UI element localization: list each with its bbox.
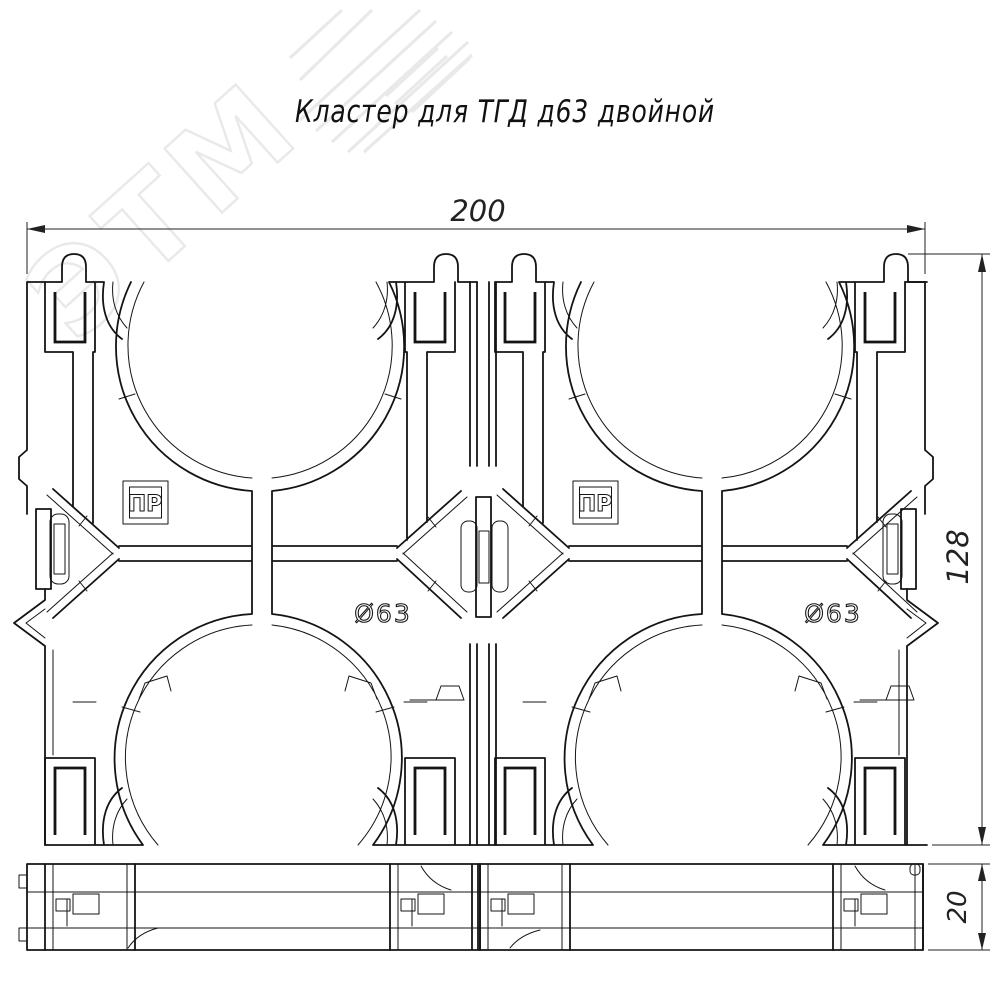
arrowhead-bottom (978, 933, 986, 950)
watermark-text: ЭТМ (1, 53, 327, 366)
center-latch-cap-left (461, 521, 477, 592)
watermark: ЭТМ (1, 10, 472, 366)
bottom-view-curves (128, 866, 885, 948)
dimension-thickness: 20 (928, 864, 990, 950)
right-latch-bar (901, 509, 916, 589)
arrowhead-bottom (978, 827, 986, 845)
bottom-view (19, 864, 923, 950)
center-junction (461, 282, 508, 845)
drawing-sheet: ПР Ø63 ЭТМ Кластер для ТГД д63 двойной (0, 0, 1000, 1000)
dimension-thickness-value: 20 (943, 890, 973, 923)
right-edge (883, 282, 938, 845)
arrowhead-top (978, 254, 986, 272)
center-latch-cap-right (492, 521, 508, 592)
technical-drawing: ПР Ø63 ЭТМ Кластер для ТГД д63 двойной (0, 0, 1000, 1000)
left-edge (14, 282, 69, 845)
drawing-title: Кластер для ТГД д63 двойной (295, 94, 715, 130)
dimension-width-value: 200 (450, 194, 505, 228)
arrowhead-top (978, 864, 986, 881)
arrowhead-right (907, 225, 925, 233)
front-view (14, 254, 938, 845)
watermark-logo (290, 10, 472, 152)
dimension-height: 128 (908, 254, 990, 845)
left-latch-bar (36, 509, 51, 589)
dimension-height-value: 128 (941, 529, 975, 584)
module-right (495, 254, 927, 845)
